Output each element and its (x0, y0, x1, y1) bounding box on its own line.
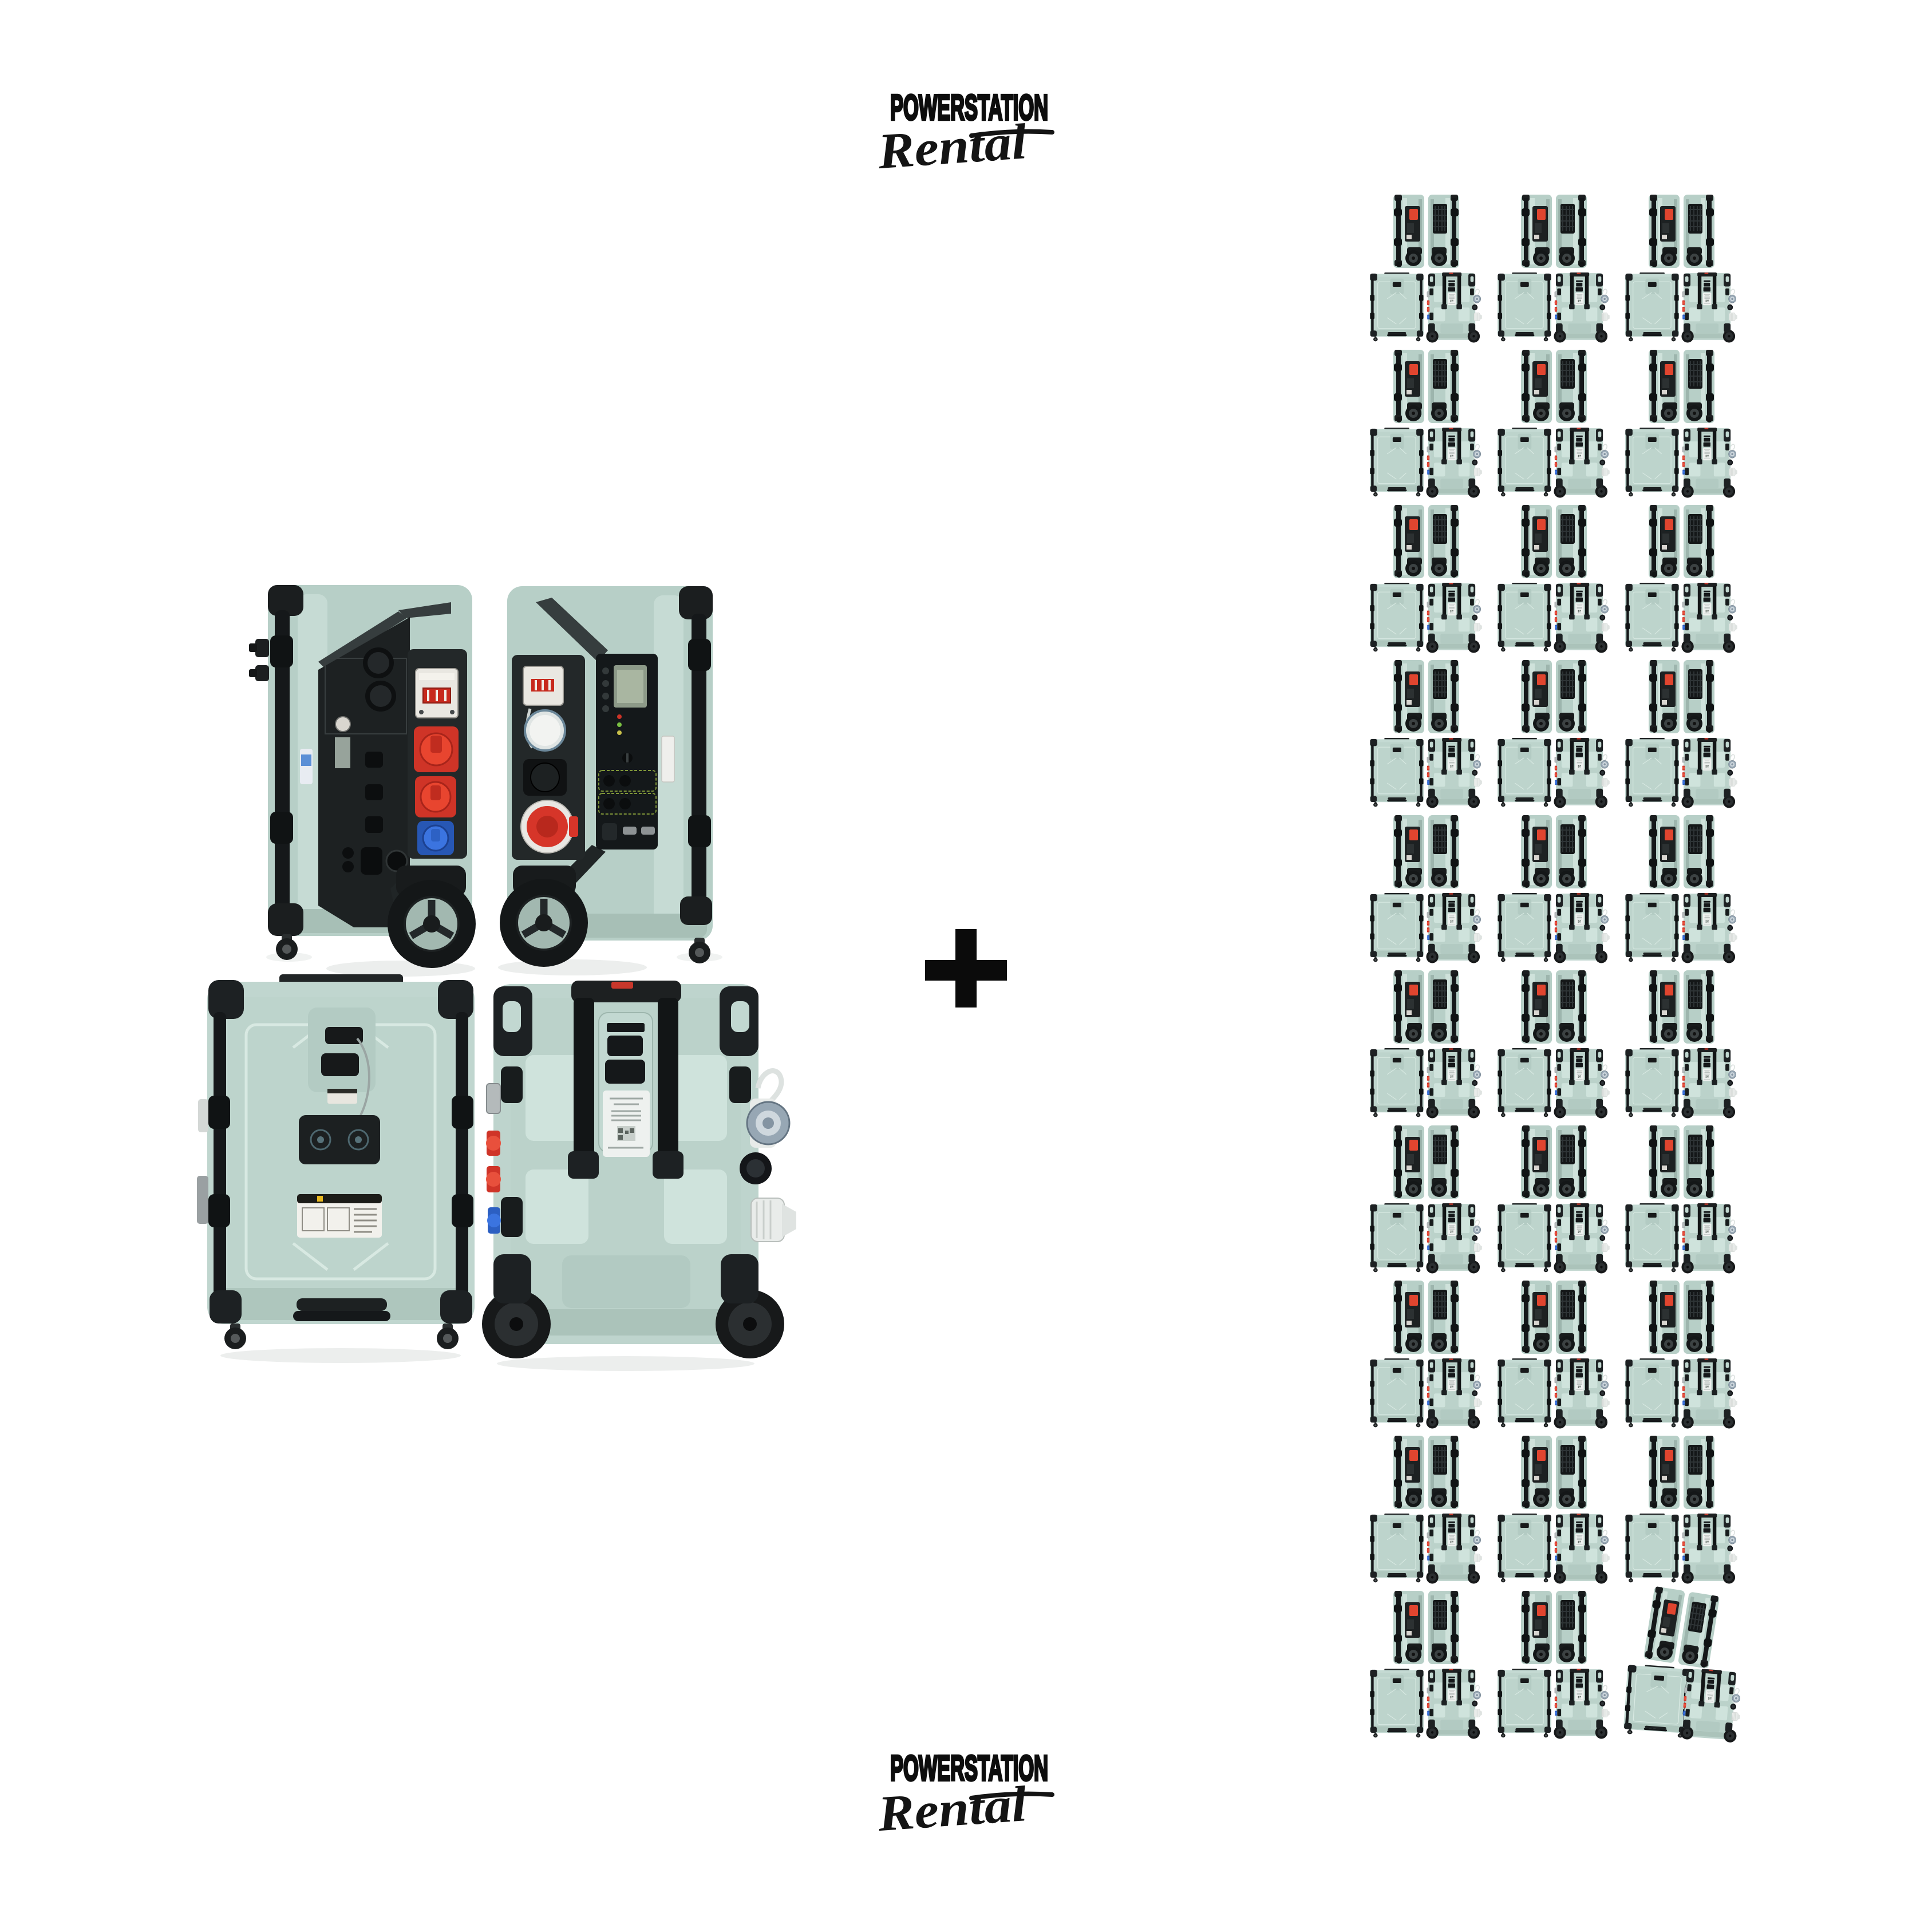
svg-text:Rental: Rental (875, 1776, 1029, 1842)
svg-text:Rental: Rental (875, 114, 1029, 180)
